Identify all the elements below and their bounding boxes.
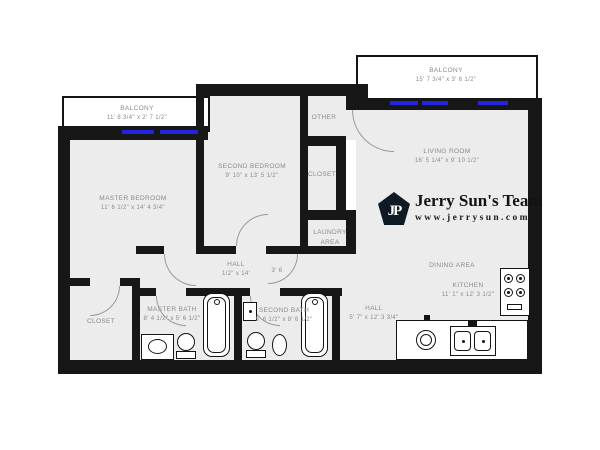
door-opening bbox=[164, 246, 196, 254]
pedestal-sink bbox=[272, 334, 287, 356]
master-bath-label: MASTER BATH 8' 4 1/2" x 5' 6 1/2" bbox=[144, 305, 201, 324]
team-logo-icon: JP bbox=[378, 192, 410, 225]
door-opening bbox=[236, 246, 266, 254]
stove bbox=[500, 268, 530, 316]
balcony-left-label: BALCONY 11' 8 3/4" x 2' 7 1/2" bbox=[107, 104, 167, 123]
room-dims: 5' 6 1/2" x 8' 6 1/2" bbox=[256, 316, 313, 325]
wall bbox=[58, 126, 70, 374]
hall-door-note: 3' 6 bbox=[272, 267, 283, 276]
room-name: BALCONY bbox=[416, 66, 477, 76]
toilet bbox=[247, 332, 265, 350]
window bbox=[422, 101, 448, 105]
master-bedroom-label: MASTER BEDROOM 11' 6 1/2" x 14' 4 3/4" bbox=[99, 194, 166, 213]
second-bedroom-label: SECOND BEDROOM 9' 10" x 13' 5 1/2" bbox=[218, 162, 286, 181]
wall bbox=[58, 360, 542, 374]
room-dims: 1/2" x 14' bbox=[222, 270, 250, 279]
room-name: HALL bbox=[222, 260, 250, 270]
living-room-label: LIVING ROOM 16' 5 1/4" x 9' 10 1/2" bbox=[415, 147, 479, 166]
room-dims: 5' 7" x 12' 3 3/4" bbox=[349, 314, 398, 323]
second-bath-label: SECOND BATH 5' 6 1/2" x 8' 6 1/2" bbox=[256, 306, 313, 325]
room-dims: 11' 1" x 12' 3 1/2" bbox=[442, 291, 494, 300]
door-opening bbox=[90, 278, 120, 286]
room-name: HALL bbox=[349, 304, 398, 314]
toilet bbox=[177, 333, 195, 351]
wall bbox=[196, 96, 204, 254]
door-opening bbox=[250, 288, 280, 296]
kitchen-label: KITCHEN 11' 1" x 12' 3 1/2" bbox=[442, 281, 494, 300]
wall bbox=[332, 288, 340, 364]
bathtub bbox=[203, 293, 230, 357]
team-name: Jerry Sun's Team bbox=[415, 192, 543, 211]
room-name: KITCHEN bbox=[442, 281, 494, 291]
round-sink bbox=[416, 330, 436, 350]
window bbox=[122, 130, 154, 134]
wall bbox=[234, 288, 242, 364]
room-name: CLOSET bbox=[87, 317, 115, 327]
window bbox=[478, 101, 508, 105]
room-dims: 11' 6 1/2" x 14' 4 3/4" bbox=[99, 204, 166, 213]
room-name: LIVING ROOM bbox=[415, 147, 479, 157]
wall bbox=[336, 140, 346, 214]
window bbox=[160, 130, 198, 134]
floor-plan: BALCONY 11' 8 3/4" x 2' 7 1/2" BALCONY 1… bbox=[0, 0, 600, 450]
wall bbox=[196, 84, 368, 96]
room-name: MASTER BEDROOM bbox=[99, 194, 166, 204]
room-name: CLOSET bbox=[308, 170, 336, 180]
room-name: SECOND BATH bbox=[256, 306, 313, 316]
website-url: www.jerrysun.com bbox=[415, 213, 543, 223]
room-name: BALCONY bbox=[107, 104, 167, 114]
faucet bbox=[468, 321, 477, 327]
laundry-label: LAUNDRY AREA bbox=[307, 228, 353, 248]
faucet bbox=[424, 315, 430, 321]
room-name: SECOND BEDROOM bbox=[218, 162, 286, 172]
room-dims: 15' 7 3/4" x 3' 6 1/2" bbox=[416, 76, 477, 85]
room-dims: 9' 10" x 13' 5 1/2" bbox=[218, 172, 286, 181]
room-name: MASTER BATH bbox=[144, 305, 201, 315]
double-sink bbox=[450, 326, 496, 356]
logo-monogram: JP bbox=[388, 197, 401, 220]
window bbox=[390, 101, 418, 105]
room-dims: 11' 8 3/4" x 2' 7 1/2" bbox=[107, 114, 167, 123]
room-name: LAUNDRY AREA bbox=[307, 228, 353, 248]
room-dims: 16' 5 1/4" x 9' 10 1/2" bbox=[415, 157, 479, 166]
hall-middle-label: HALL 1/2" x 14' bbox=[222, 260, 250, 279]
balcony-right-label: BALCONY 15' 7 3/4" x 3' 6 1/2" bbox=[416, 66, 477, 85]
dining-area-label: DINING AREA bbox=[429, 261, 475, 271]
wall bbox=[300, 210, 346, 220]
closet-middle-label: CLOSET bbox=[308, 170, 336, 180]
toilet-tank bbox=[176, 351, 196, 359]
room-name: DINING AREA bbox=[429, 261, 475, 271]
toilet-tank bbox=[246, 350, 266, 358]
wall bbox=[528, 98, 542, 374]
door-opening bbox=[156, 288, 186, 296]
other-room-label: OTHER bbox=[312, 113, 337, 123]
closet-lower-left-label: CLOSET bbox=[87, 317, 115, 327]
room-name: OTHER bbox=[312, 113, 337, 123]
branding-block: JP Jerry Sun's Team www.jerrysun.com bbox=[378, 192, 543, 225]
room-dims: 8' 4 1/2" x 5' 6 1/2" bbox=[144, 315, 201, 324]
hall-lower-label: HALL 5' 7" x 12' 3 3/4" bbox=[349, 304, 398, 323]
vanity-sink bbox=[141, 334, 174, 360]
